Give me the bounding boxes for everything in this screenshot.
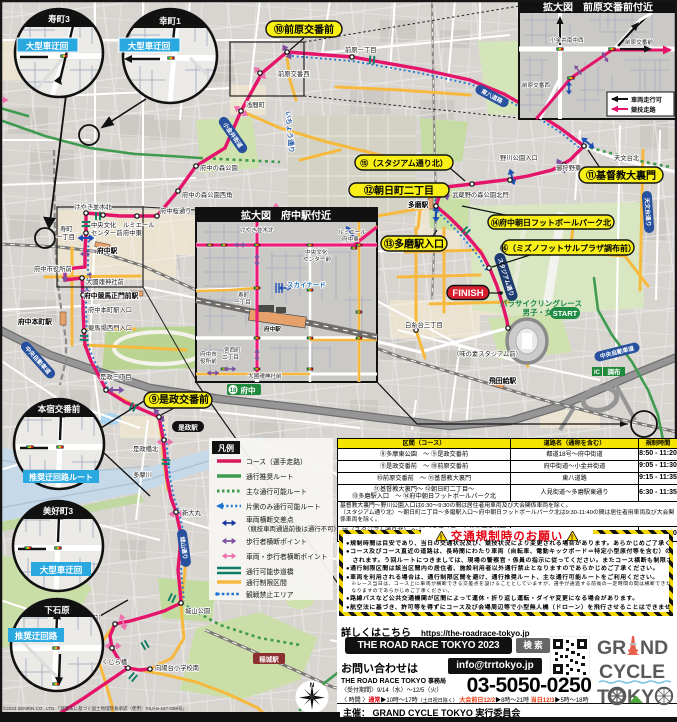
svg-text:小金井南中西: 小金井南中西 (550, 36, 584, 44)
svg-text:ND: ND (640, 637, 668, 659)
svg-text:府中東: 府中東 (342, 235, 359, 243)
svg-text:©2023 ZENRIN CO., LTD.「測量法に基づく: ©2023 ZENRIN CO., LTD.「測量法に基づく国土地理院長承認（使… (3, 705, 187, 712)
svg-text:寿町: 寿町 (60, 224, 73, 233)
svg-text:前原交番前: 前原交番前 (625, 38, 653, 46)
svg-text:通行制限区間: 通行制限区間 (246, 578, 287, 587)
svg-text:大國魂神社前: 大國魂神社前 (248, 372, 282, 380)
svg-text:拡大図 前原交番前付近: 拡大図 前原交番前付近 (543, 1, 653, 14)
svg-text:白糸台三丁目: 白糸台三丁目 (405, 320, 443, 329)
svg-text:スカイナード: スカイナード (287, 281, 326, 289)
svg-text:大型車迂回: 大型車迂回 (26, 41, 69, 51)
svg-text:N: N (310, 682, 315, 689)
svg-text:是政駅: 是政駅 (177, 423, 198, 432)
svg-text:KY: KY (627, 686, 654, 708)
svg-text:府中市: 府中市 (200, 350, 217, 358)
svg-text:府中本町駅: 府中本町駅 (18, 317, 52, 326)
svg-text:府中: 府中 (241, 385, 256, 395)
svg-text:車両・歩行者横断ポイント: 車両・歩行者横断ポイント (246, 552, 328, 561)
svg-text:GR: GR (597, 637, 626, 659)
svg-text:浅間町: 浅間町 (246, 100, 266, 109)
svg-text:推奨迂回路: 推奨迂回路 (15, 631, 58, 641)
svg-text:T: T (597, 686, 609, 708)
svg-text:中央文化: 中央文化 (91, 220, 117, 229)
svg-text:推奨迂回路ルート: 推奨迂回路ルート (29, 472, 93, 482)
svg-text:ルミエール: ルミエール (123, 222, 154, 229)
svg-text:前原交番西: 前原交番西 (278, 69, 309, 78)
svg-text:⑨是政交番前: ⑨是政交番前 (149, 393, 209, 406)
svg-text:稲城駅: 稲城駅 (259, 655, 279, 664)
svg-text:主な通行可能ルート: 主な通行可能ルート (246, 487, 307, 496)
svg-text:けやき並木北: けやき並木北 (74, 202, 112, 211)
svg-text:府中東: 府中東 (123, 228, 143, 237)
svg-text:二丁目: 二丁目 (222, 354, 239, 361)
svg-text:本宿交番前: 本宿交番前 (38, 404, 81, 414)
svg-text:片側のみ通行可能ルート: 片側のみ通行可能ルート (246, 502, 321, 511)
svg-text:多摩川: 多摩川 (133, 470, 152, 479)
svg-text:18: 18 (230, 388, 237, 394)
svg-text:府中駅: 府中駅 (264, 325, 281, 333)
svg-text:⑯（ミズノフットサルプラザ調布前）: ⑯（ミズノフットサルプラザ調布前） (500, 243, 636, 253)
svg-text:通行可能歩道橋: 通行可能歩道橋 (246, 567, 294, 576)
svg-text:FINISH: FINISH (452, 288, 483, 299)
svg-text:通行推奨ルート: 通行推奨ルート (246, 472, 294, 481)
svg-text:IC: IC (594, 370, 601, 376)
svg-text:新大丸: 新大丸 (182, 508, 202, 517)
svg-text:府中市役所前: 府中市役所前 (34, 264, 72, 273)
svg-text:車両走行可: 車両走行可 (631, 96, 662, 104)
svg-text:是政橋北: 是政橋北 (133, 444, 159, 453)
svg-text:幸町1: 幸町1 (159, 16, 181, 26)
svg-text:（競技車両通過前後は通行不可）: （競技車両通過前後は通行不可） (244, 524, 340, 533)
svg-text:前原一丁目: 前原一丁目 (345, 45, 376, 54)
svg-text:センター前: センター前 (91, 228, 122, 237)
svg-text:府中桜通り: 府中桜通り (160, 206, 191, 215)
svg-text:凡例: 凡例 (218, 443, 234, 453)
svg-text:調布: 調布 (608, 367, 622, 376)
svg-text:⑮（スタジアム通り北）: ⑮（スタジアム通り北） (360, 158, 447, 168)
svg-text:役所前: 役所前 (200, 357, 217, 365)
svg-text:けやき並木北: けやき並木北 (240, 226, 274, 234)
svg-text:向陽台小学校南: 向陽台小学校南 (155, 663, 199, 672)
svg-text:寿町: 寿町 (238, 291, 250, 299)
svg-text:コース（選手走路）: コース（選手走路） (246, 457, 307, 466)
svg-text:（味の素スタジアム前）: （味の素スタジアム前） (453, 349, 522, 358)
svg-text:CYCLE: CYCLE (599, 661, 665, 683)
svg-text:多磨駅: 多磨駅 (408, 200, 429, 209)
svg-text:寿町3: 寿町3 (47, 14, 70, 24)
svg-text:⑬多磨駅入口: ⑬多磨駅入口 (384, 238, 444, 251)
svg-text:飛田給駅: 飛田給駅 (488, 376, 516, 385)
svg-text:城山公園: 城山公園 (185, 606, 210, 615)
svg-text:前原交番西: 前原交番西 (522, 81, 550, 89)
svg-text:ルミエール: ルミエール (338, 229, 366, 236)
svg-text:⑪基督教大裏門: ⑪基督教大裏門 (586, 169, 656, 182)
svg-text:一丁目: 一丁目 (56, 233, 75, 241)
svg-text:御狩野東: 御狩野東 (556, 163, 582, 172)
svg-text:是政三丁目: 是政三丁目 (100, 372, 131, 381)
svg-text:パラサイクリングレース: パラサイクリングレース (500, 298, 582, 308)
svg-text:府中競馬正門前駅: 府中競馬正門前駅 (84, 291, 139, 300)
svg-text:一丁目: 一丁目 (234, 299, 251, 306)
svg-text:センター前: センター前 (303, 255, 331, 263)
svg-text:府中の森公園: 府中の森公園 (200, 163, 238, 172)
svg-text:大國魂神社前: 大國魂神社前 (86, 277, 124, 286)
svg-text:府中本町駅入口: 府中本町駅入口 (88, 305, 132, 314)
svg-text:車両横断交差点: 車両横断交差点 (246, 515, 294, 524)
svg-text:大型車迂回: 大型車迂回 (128, 41, 171, 51)
svg-text:⑩前原交番前: ⑩前原交番前 (274, 23, 334, 36)
svg-text:観戦禁止エリア: 観戦禁止エリア (246, 590, 294, 599)
svg-text:競技走路: 競技走路 (631, 106, 657, 114)
svg-text:大型車迂回: 大型車迂回 (40, 565, 83, 575)
svg-text:府中の森公園西角: 府中の森公園西角 (182, 190, 232, 199)
svg-text:下石原: 下石原 (44, 605, 70, 615)
svg-text:野川公園入口: 野川公園入口 (500, 154, 538, 162)
svg-text:宮西町: 宮西町 (224, 346, 241, 354)
svg-text:START: START (553, 309, 578, 318)
svg-text:武蔵野の森公園北門: 武蔵野の森公園北門 (452, 190, 509, 199)
svg-text:競馬場西門入口: 競馬場西門入口 (88, 323, 132, 332)
svg-text:歩行者横断ポイント: 歩行者横断ポイント (246, 537, 307, 546)
svg-text:中央文化: 中央文化 (305, 248, 328, 256)
svg-text:美好町3: 美好町3 (43, 506, 74, 516)
svg-text:天文台北: 天文台北 (614, 153, 640, 162)
svg-text:⑫朝日町二丁目: ⑫朝日町二丁目 (364, 184, 434, 197)
svg-text:拡大図 府中駅付近: 拡大図 府中駅付近 (241, 209, 331, 222)
svg-text:府中駅: 府中駅 (97, 246, 118, 255)
svg-text:くじら橋: くじら橋 (102, 657, 128, 666)
svg-text:⑭府中朝日フットボールパーク北: ⑭府中朝日フットボールパーク北 (491, 218, 611, 228)
